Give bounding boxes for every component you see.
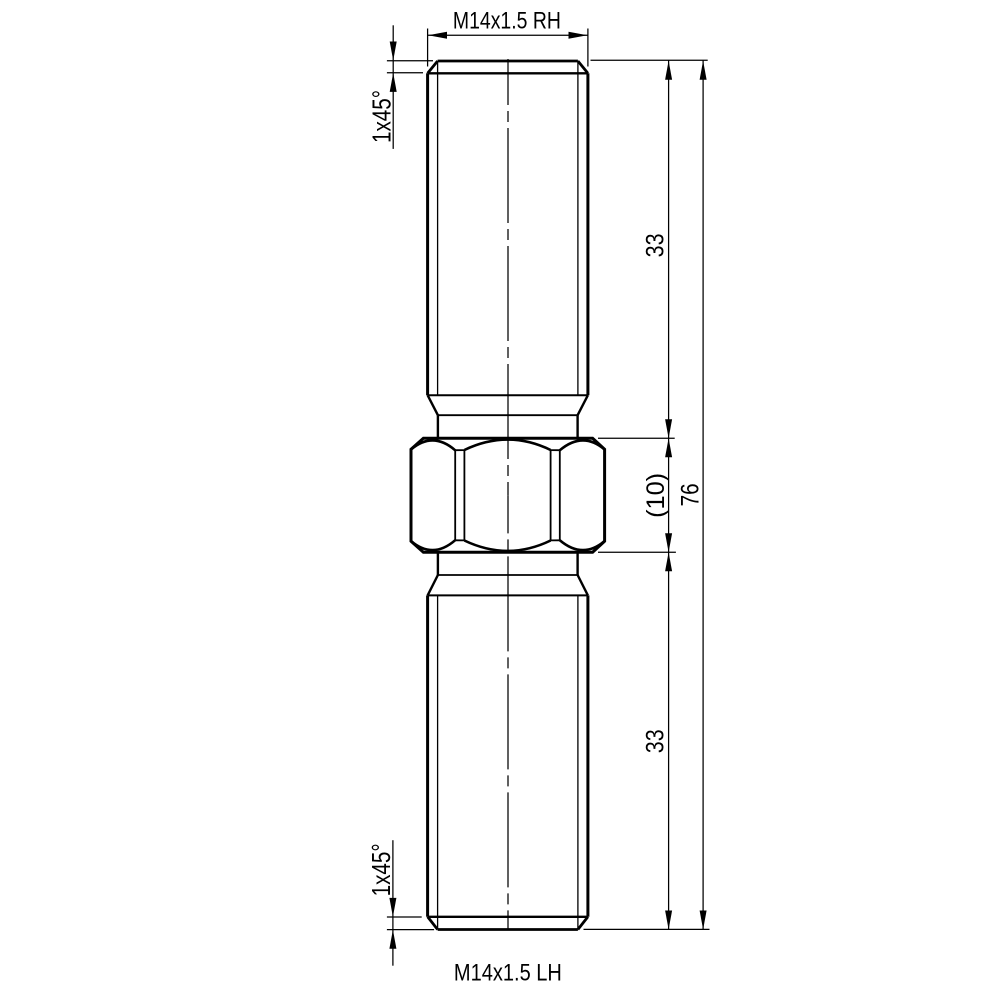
svg-text:M14x1.5 RH: M14x1.5 RH [453, 8, 561, 35]
svg-text:33: 33 [642, 233, 670, 257]
svg-text:1x45°: 1x45° [367, 90, 397, 143]
svg-text:M14x1.5 LH: M14x1.5 LH [454, 960, 562, 987]
svg-text:33: 33 [642, 729, 670, 753]
svg-text:(10): (10) [642, 473, 670, 518]
svg-text:1x45°: 1x45° [366, 843, 396, 896]
svg-text:76: 76 [677, 483, 705, 506]
